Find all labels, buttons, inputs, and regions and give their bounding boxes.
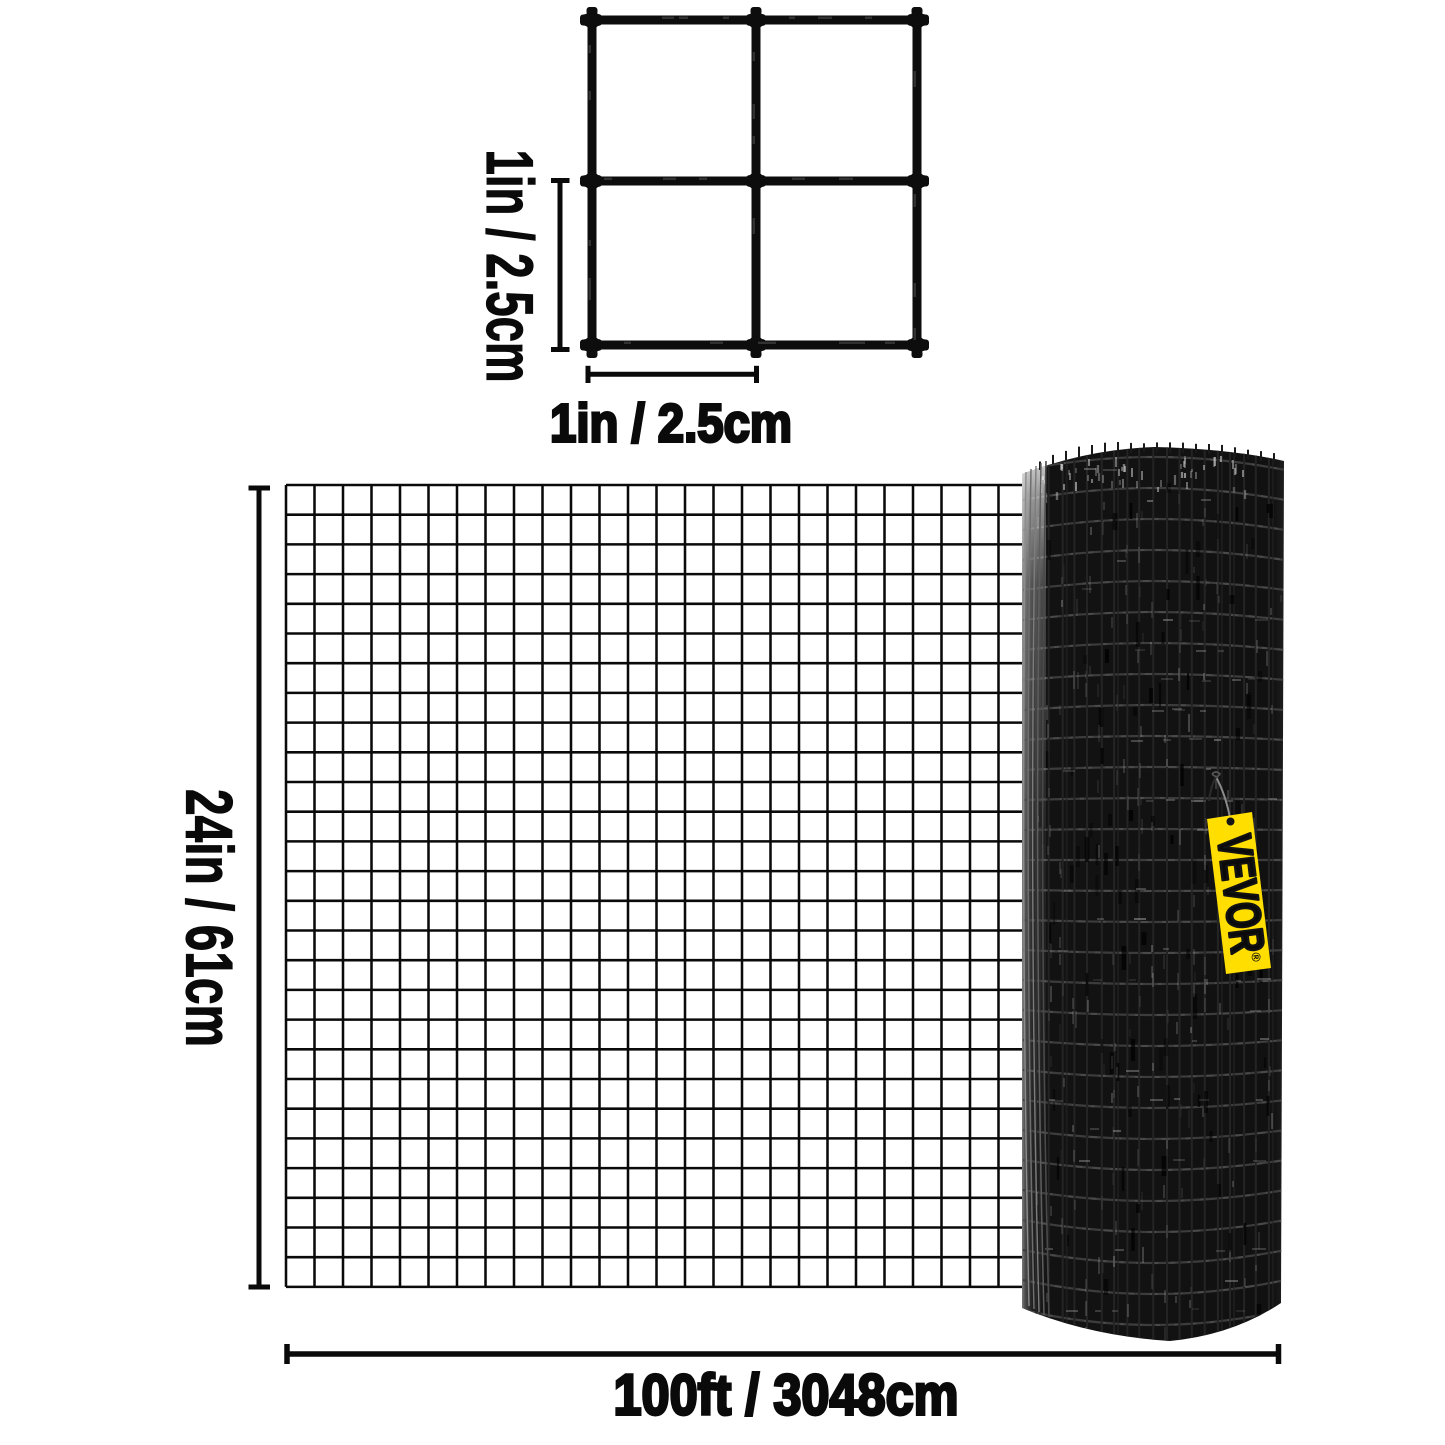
svg-text:24in / 61cm: 24in / 61cm — [173, 789, 247, 1047]
svg-text:1in / 2.5cm: 1in / 2.5cm — [550, 394, 792, 454]
svg-text:1in / 2.5cm: 1in / 2.5cm — [473, 150, 547, 383]
svg-text:100ft / 3048cm: 100ft / 3048cm — [614, 1364, 959, 1428]
